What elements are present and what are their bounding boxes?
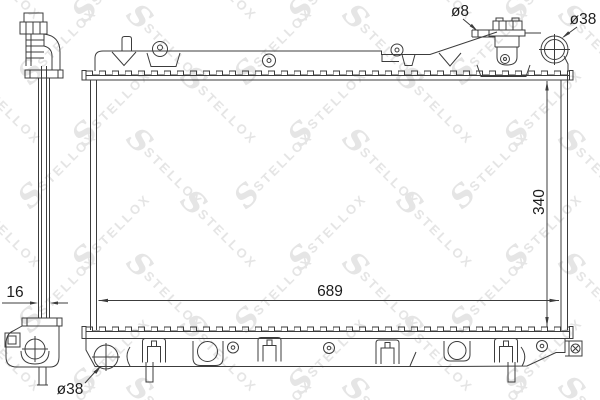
- overflow-pipe-diameter-label: ø8: [451, 3, 469, 20]
- dimension-height-340: 340: [531, 81, 549, 327]
- mount-bracket: [376, 340, 399, 364]
- side-fitting: [565, 341, 582, 356]
- mount-bracket: [495, 339, 518, 363]
- label-inlet: ø38: [562, 11, 596, 38]
- top-tank: [95, 18, 570, 77]
- dimension-width-689: 689: [99, 283, 560, 302]
- filler-neck-side: [26, 34, 60, 70]
- bolt: [324, 343, 335, 354]
- top-crenellated-strip: [82, 71, 573, 81]
- drain-opening: [444, 341, 470, 361]
- drain-opening: [193, 341, 223, 366]
- inlet-port: [539, 34, 570, 65]
- bolt: [228, 342, 239, 353]
- bracket-leg: [508, 362, 515, 382]
- filler-cap-side: [20, 13, 47, 34]
- filler-neck-front: [489, 18, 525, 65]
- dimension-thickness-16: 16: [2, 284, 68, 305]
- bottom-crenellated-strip: [82, 327, 573, 339]
- mount-ear: [153, 42, 168, 57]
- side-bottom-tank: [5, 318, 62, 385]
- grommet: [263, 54, 276, 67]
- top-tab: [122, 37, 132, 52]
- bottom-tank: [86, 338, 582, 383]
- core-thickness-label: 16: [6, 284, 23, 301]
- side-core-strip: [39, 66, 50, 318]
- core-height-label: 340: [531, 189, 548, 215]
- bracket-leg: [146, 362, 153, 382]
- inlet-diameter-label: ø38: [570, 11, 597, 28]
- mount-bracket: [258, 338, 281, 362]
- mount-bracket: [143, 339, 166, 363]
- drawing-canvas: 689 340 16 ø8 ø38 ø38: [0, 0, 600, 400]
- side-top-mount: [25, 70, 63, 78]
- v-notch: [112, 52, 136, 66]
- label-outlet: ø38: [57, 366, 101, 398]
- label-overflow-pipe: ø8: [451, 3, 478, 31]
- front-view: [82, 18, 582, 382]
- bolt: [537, 341, 548, 352]
- core-width-label: 689: [317, 283, 343, 300]
- radiator-technical-drawing: { "watermark": { "logo": "S", "word": "S…: [0, 0, 600, 400]
- side-view: [5, 13, 63, 385]
- outlet-diameter-label: ø38: [57, 381, 84, 398]
- v-funnel: [439, 53, 461, 66]
